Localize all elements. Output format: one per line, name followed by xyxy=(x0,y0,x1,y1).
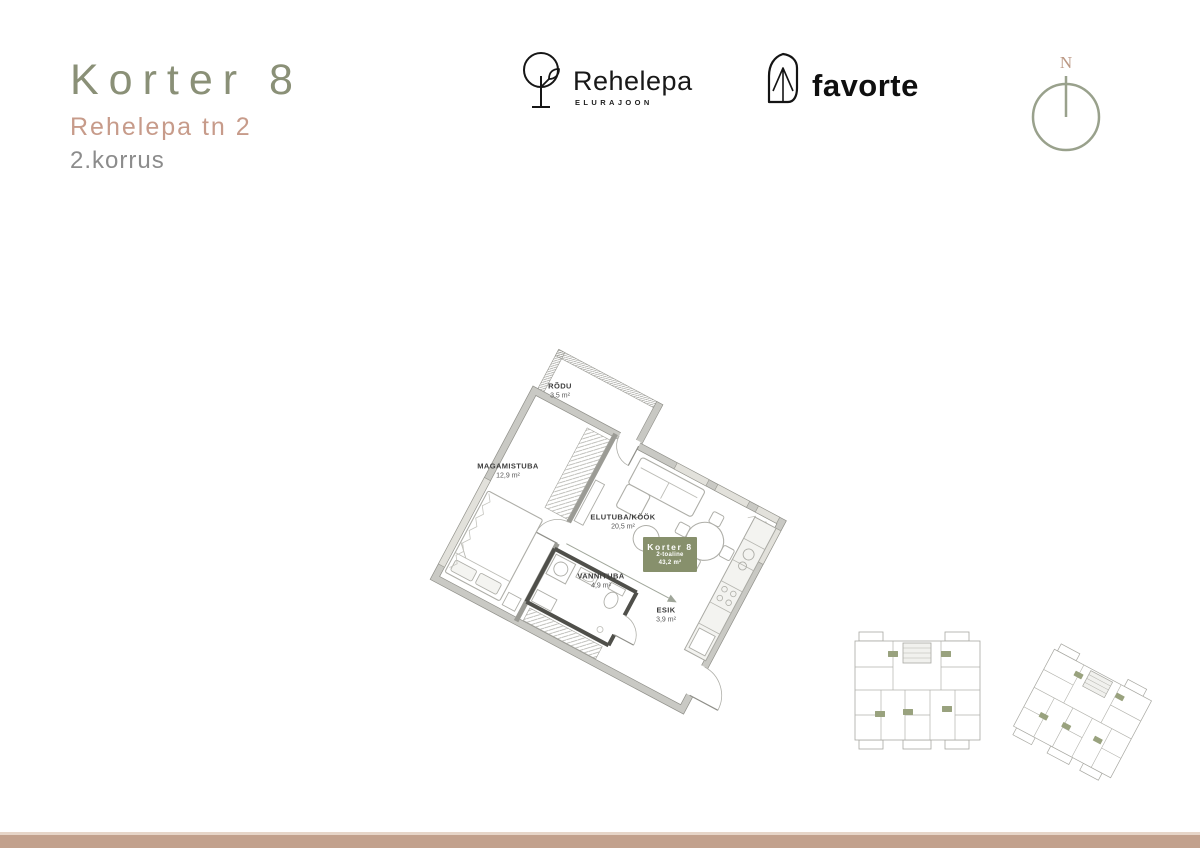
page-title: Korter 8 xyxy=(70,56,303,105)
leaf-house-icon xyxy=(766,52,800,111)
unit-badge: Korter 8 2-toaline 43,2 m² xyxy=(643,537,697,572)
tree-icon xyxy=(520,50,564,119)
brochure-page: Korter 8 Rehelepa tn 2 2.korrus Rehelepa… xyxy=(0,0,1200,848)
rehelepa-logo: Rehelepa ELURAJOON xyxy=(520,50,693,119)
unit-badge-type: 2-toaline xyxy=(643,552,697,560)
room-label-vannituba: VANNITUBA 4,9 m² xyxy=(577,572,624,591)
footer-bar xyxy=(0,835,1200,848)
unit-badge-title: Korter 8 xyxy=(643,542,697,553)
favorte-name: favorte xyxy=(812,68,919,104)
room-label-elutuba-kook: ELUTUBA/KÖÖK 20,5 m² xyxy=(590,513,655,532)
site-plan-left xyxy=(855,632,980,749)
site-plan-right xyxy=(1010,642,1155,785)
unit-badge-area: 43,2 m² xyxy=(643,560,697,568)
room-label-magamistuba: MAGAMISTUBA 12,9 m² xyxy=(477,462,538,481)
room-label-esik: ESIK 3,9 m² xyxy=(656,606,676,625)
rehelepa-tagline: ELURAJOON xyxy=(575,99,693,107)
room-label-rodu: RÕDU 3,5 m² xyxy=(548,382,572,401)
north-compass: N xyxy=(1020,46,1112,161)
site-plans xyxy=(840,618,1188,816)
rehelepa-name: Rehelepa xyxy=(573,68,693,95)
street-address: Rehelepa tn 2 xyxy=(70,113,252,142)
compass-n-label: N xyxy=(1060,53,1072,72)
favorte-logo: favorte xyxy=(766,52,919,111)
floor-label: 2.korrus xyxy=(70,147,165,175)
